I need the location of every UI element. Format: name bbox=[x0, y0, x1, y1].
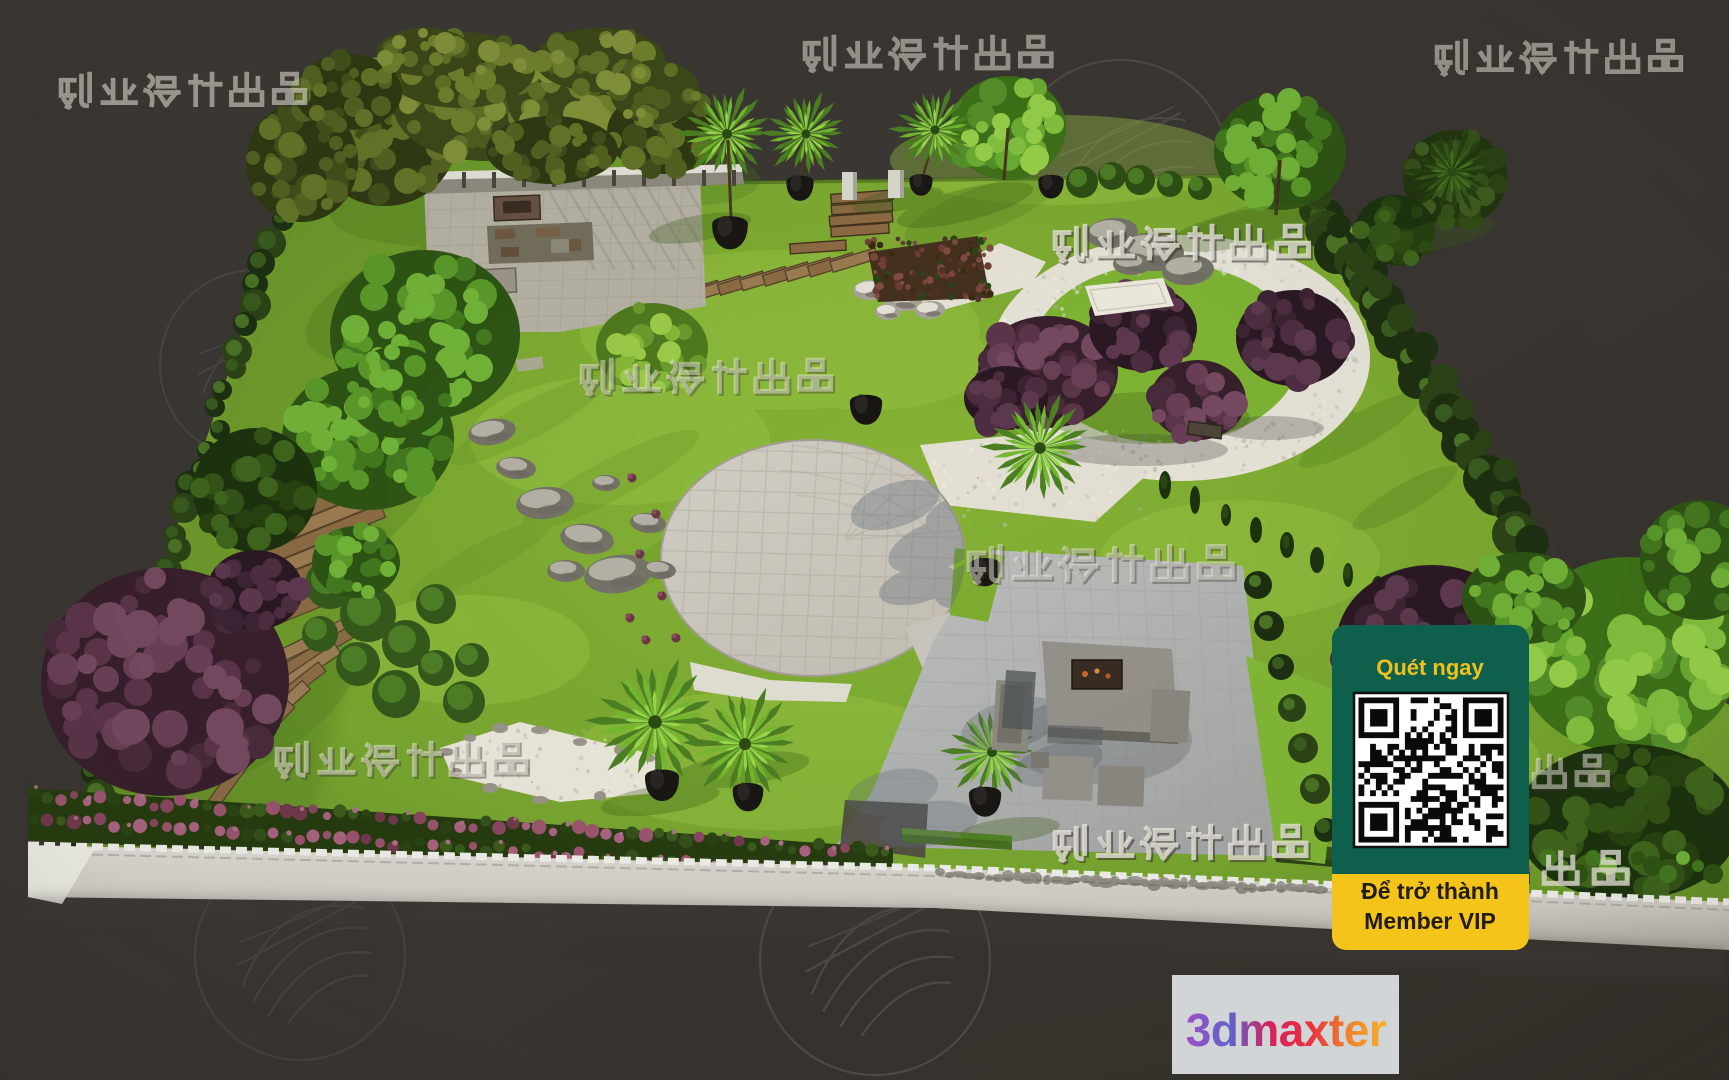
svg-text:Quét ngay: Quét ngay bbox=[1376, 655, 1484, 680]
svg-text:3dmaxter: 3dmaxter bbox=[1186, 1004, 1387, 1056]
svg-text:Member VIP: Member VIP bbox=[1364, 908, 1496, 934]
svg-text:Để trở thành: Để trở thành bbox=[1361, 878, 1499, 904]
